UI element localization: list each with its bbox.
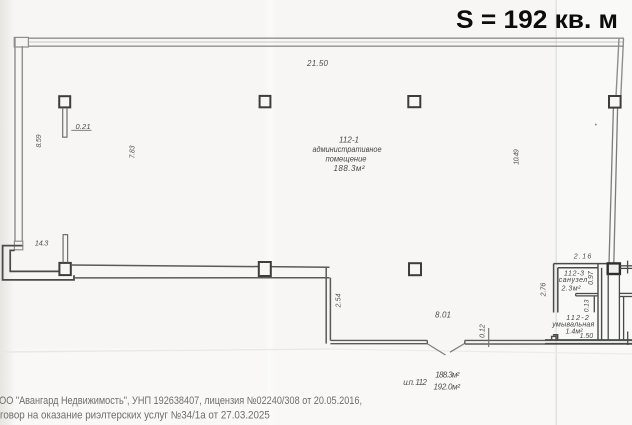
svg-text:0.97: 0.97	[588, 270, 595, 285]
svg-text:0.12: 0.12	[480, 324, 487, 338]
svg-text:14.3: 14.3	[35, 239, 49, 248]
svg-text:ООО "Авангард Недвижимость", У: ООО "Авангард Недвижимость", УНП 1926384…	[0, 395, 362, 407]
svg-text:112-1: 112-1	[339, 136, 359, 145]
svg-text:договор на оказание риэлтерски: договор на оказание риэлтерских услуг №3…	[0, 410, 270, 422]
svg-text:2.76: 2.76	[541, 283, 548, 298]
svg-text:S = 192 кв. м: S = 192 кв. м	[456, 6, 618, 34]
svg-text:188.3м²: 188.3м²	[435, 370, 459, 379]
svg-text:и.п. 112: и.п. 112	[403, 378, 427, 387]
svg-text:8.59: 8.59	[36, 134, 43, 147]
svg-text:192.0м²: 192.0м²	[434, 382, 461, 391]
svg-text:2.16: 2.16	[573, 254, 592, 261]
svg-text:2.54: 2.54	[336, 293, 343, 308]
svg-text:0.13: 0.13	[584, 299, 591, 312]
svg-text:1.4м²: 1.4м²	[566, 329, 584, 336]
svg-text:10.49: 10.49	[513, 149, 520, 165]
svg-text:санузел: санузел	[559, 277, 588, 284]
svg-text:8.01: 8.01	[435, 311, 451, 320]
svg-text:помещение: помещение	[326, 155, 368, 164]
svg-text:21.50: 21.50	[306, 59, 329, 68]
svg-text:188.3м²: 188.3м²	[334, 164, 365, 173]
svg-text:2.3м²: 2.3м²	[561, 285, 582, 292]
svg-text:7.83: 7.83	[130, 145, 137, 158]
svg-text:административное: административное	[313, 145, 383, 154]
svg-text:0.21: 0.21	[76, 122, 91, 131]
svg-text:умывальная: умывальная	[551, 321, 594, 328]
